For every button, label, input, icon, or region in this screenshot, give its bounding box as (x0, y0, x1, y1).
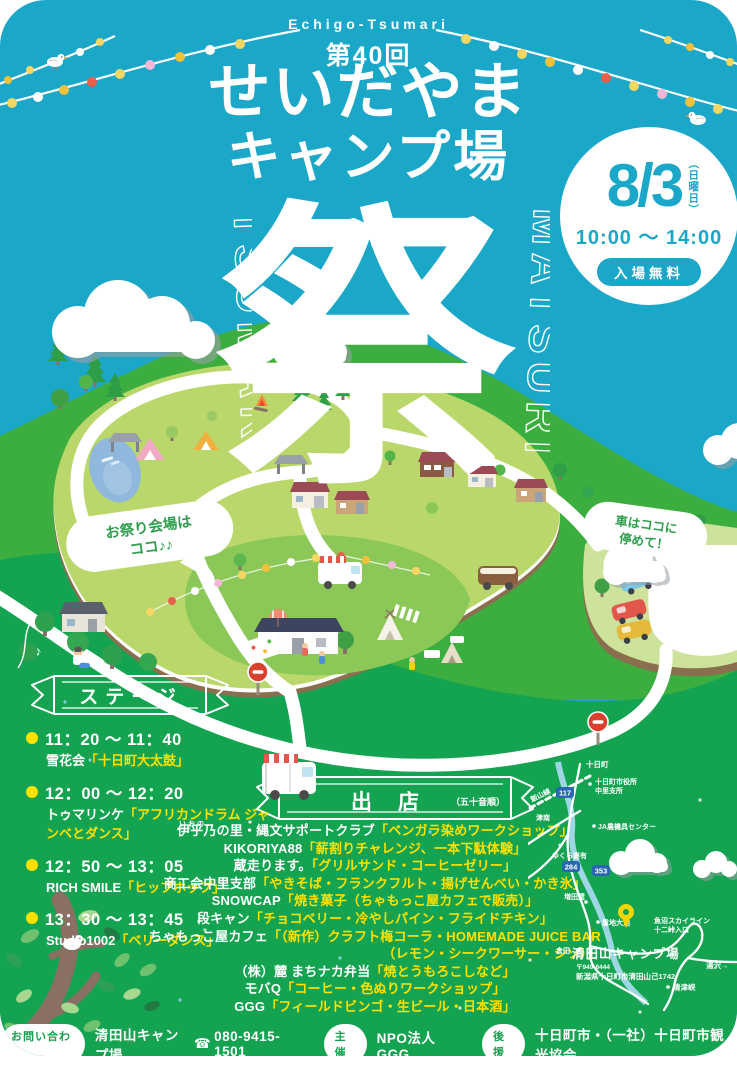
bullet-dot-icon (26, 912, 38, 924)
site-name: 清田山キャンプ場 (572, 946, 680, 961)
bullet-dot-icon (26, 859, 38, 871)
bullet-dot-icon (26, 786, 38, 798)
support-value: 十日町市・（一社）十日町市観光協会 (535, 1024, 737, 1056)
svg-text:JA農機具センター: JA農機具センター (598, 822, 656, 831)
access-map: 117 284 353 飯山線 十日町 十日町市役所 中里支所 津南 JA農機具… (528, 756, 737, 1012)
svg-text:十日町: 十日町 (586, 759, 609, 769)
svg-text:ゆくら妻有: ゆくら妻有 (552, 851, 587, 860)
organizer-value: NPO法人GGG (377, 1027, 457, 1057)
stage-ribbon-title: ステージ (55, 682, 207, 709)
svg-text:十日町市役所: 十日町市役所 (595, 777, 637, 786)
svg-text:清津峡: 清津峡 (673, 982, 696, 992)
vendors-ribbon-title: 出店 （五十音順） (300, 786, 530, 816)
vertical-word-left: TSUMARI (186, 206, 252, 542)
ruby-note: いおの (179, 816, 206, 834)
svg-text:中里支所: 中里支所 (595, 786, 623, 795)
vendors-order-note: （五十音順） (451, 795, 505, 808)
stage-act: 「十日町大太鼓」 (85, 753, 189, 768)
svg-text:MATSURI: MATSURI (515, 208, 550, 463)
svg-text:十二峠入口: 十二峠入口 (654, 925, 689, 934)
route-shields: 117 284 353 (556, 787, 610, 876)
poster: お祭り会場は ココ♪♪ 車はココに 停めて！ ♪ ♪ (0, 0, 737, 1056)
svg-text:津南: 津南 (536, 813, 550, 822)
site-address: 新潟県十日町市清田山己1742 (576, 971, 675, 981)
stage-performer: 雪花会 (46, 753, 85, 768)
svg-text:倉田: 倉田 (555, 946, 570, 955)
contact-phone: 080-9415-1501 (214, 1029, 298, 1056)
support-pill: 後援 (482, 1024, 525, 1056)
stage-performer: トゥマリンケ (46, 807, 124, 822)
svg-text:TSUMARI: TSUMARI (224, 209, 252, 467)
svg-text:増田屋: 増田屋 (564, 892, 585, 901)
svg-text:湯沢→: 湯沢→ (706, 960, 729, 970)
date-badge: 8/3 （日曜日） 10:00 〜 14:00 入場無料 (560, 127, 737, 305)
phone-icon: ☎ (194, 1036, 211, 1052)
svg-text:117: 117 (559, 789, 571, 798)
svg-text:魚沼スカイライン: 魚沼スカイライン (654, 916, 710, 925)
bullet-dot-icon (26, 732, 38, 744)
brand-text: Echigo-Tsumari (0, 16, 737, 32)
event-date: 8/3 (607, 157, 681, 214)
contact-pill: お問い合わせ (0, 1024, 85, 1056)
footer: お問い合わせ 清田山キャンプ場 ☎ 080-9415-1501 主催 NPO法人… (0, 1024, 737, 1056)
site-postal: 〒949-8444 (576, 963, 610, 971)
contact-value: 清田山キャンプ場 ☎ 080-9415-1501 (95, 1024, 299, 1056)
organizer-pill: 主催 (324, 1024, 367, 1056)
event-weekday: （日曜日） (686, 158, 701, 216)
event-time: 10:00 〜 14:00 (560, 221, 737, 250)
vertical-word-right: MATSURI (484, 204, 550, 544)
title-line1: せいだやま (0, 62, 737, 124)
svg-text:284: 284 (565, 863, 578, 872)
svg-text:353: 353 (595, 867, 608, 876)
stage-item: 11：20 〜 11：40 雪花会「十日町大太鼓」 (26, 726, 271, 771)
admission-pill: 入場無料 (597, 258, 701, 286)
